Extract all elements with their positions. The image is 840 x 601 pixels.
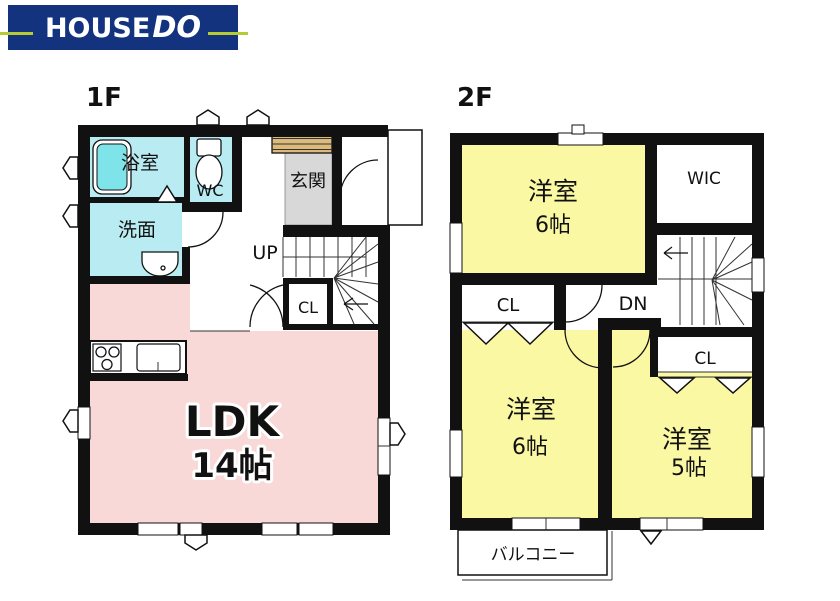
- label-ldk: LDK: [185, 397, 281, 446]
- label-entrance: 玄関: [290, 171, 326, 192]
- floor-title-2f: 2F: [457, 83, 493, 113]
- label-stairs-up: UP: [252, 242, 277, 264]
- logo-box: HOUSEDO: [8, 5, 238, 50]
- logo-text: HOUSEDO: [45, 5, 201, 51]
- label-wc: WC: [197, 181, 224, 200]
- logo-house: HOUSE: [45, 13, 150, 44]
- room-bedroom-north: [462, 145, 645, 273]
- label-bedroom-north: 洋室: [528, 177, 578, 206]
- floor-title-1f: 1F: [86, 83, 122, 113]
- label-bathroom: 浴室: [121, 152, 159, 174]
- floorplan-page: { "logo": { "house": "HOUSE", "do": "DO"…: [0, 0, 840, 601]
- label-closet-east: CL: [694, 349, 716, 369]
- label-stairs-down: DN: [619, 293, 648, 315]
- hall-door-arc: [565, 285, 602, 322]
- logo-do: DO: [152, 10, 201, 44]
- housedo-logo: HOUSEDO: [0, 0, 260, 58]
- front-door-arc: [340, 160, 378, 198]
- floorplan-2f: 2F: [435, 75, 775, 590]
- label-closet-1f: CL: [298, 298, 318, 317]
- logo-accent-line-left: [0, 32, 33, 35]
- washbasin: [142, 252, 178, 276]
- label-bedroom-se: 洋室: [662, 425, 712, 454]
- label-wic: WIC: [687, 169, 721, 189]
- floorplan-1f: 1F: [55, 75, 427, 561]
- window-marker-left-1: [63, 157, 78, 179]
- window-marker-balcony-door: [641, 531, 661, 544]
- window-marker-top-2: [247, 110, 269, 125]
- label-bedroom-sw: 洋室: [506, 395, 556, 424]
- label-ldk-size: 14帖: [191, 446, 272, 486]
- wc-door-arc: [188, 212, 223, 247]
- window-marker-right: [390, 423, 405, 445]
- kitchen-counter: [90, 341, 186, 374]
- logo-accent-line-right: [208, 32, 248, 35]
- label-washroom: 洗面: [118, 219, 156, 241]
- window-marker-left-2: [63, 205, 78, 227]
- label-balcony: バルコニー: [491, 545, 576, 565]
- label-closet-west: CL: [497, 295, 520, 316]
- label-bedroom-sw-size: 6帖: [512, 435, 548, 460]
- window-marker-top-1: [197, 110, 219, 125]
- label-bedroom-north-size: 6帖: [535, 213, 571, 238]
- window-marker-left-3: [63, 410, 78, 432]
- label-bedroom-se-size: 5帖: [671, 456, 707, 481]
- stairs-down: [658, 237, 752, 325]
- window-marker-bottom: [185, 535, 207, 550]
- entrance-porch: [388, 130, 422, 225]
